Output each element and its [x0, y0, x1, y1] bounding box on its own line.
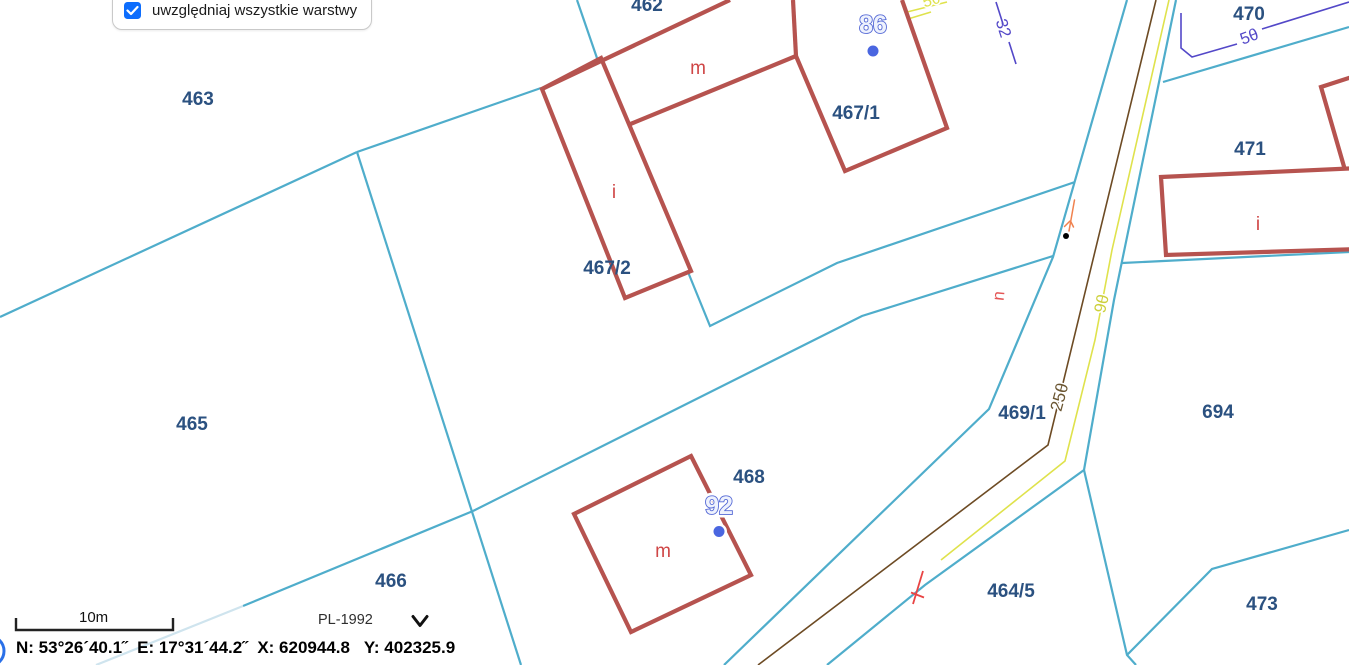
svg-text:n: n [989, 290, 1009, 301]
svg-text:462: 462 [631, 0, 663, 16]
svg-text:469/1: 469/1 [998, 403, 1046, 424]
svg-text:466: 466 [375, 571, 407, 592]
svg-text:9θ: 9θ [1091, 293, 1113, 315]
svg-text:5θ: 5θ [921, 0, 943, 11]
svg-text:463: 463 [182, 89, 214, 110]
svg-text:465: 465 [176, 414, 208, 435]
svg-text:467/1: 467/1 [832, 103, 880, 124]
svg-text:32: 32 [992, 17, 1015, 40]
svg-text:473: 473 [1246, 594, 1278, 615]
svg-text:470: 470 [1233, 4, 1265, 25]
svg-text:m: m [690, 58, 706, 79]
svg-text:464/5: 464/5 [987, 581, 1035, 602]
svg-text:467/2: 467/2 [583, 258, 631, 279]
svg-text:694: 694 [1202, 402, 1234, 423]
svg-text:468: 468 [733, 467, 765, 488]
svg-text:92: 92 [705, 492, 733, 520]
svg-text:471: 471 [1234, 139, 1266, 160]
svg-text:86: 86 [859, 11, 887, 39]
svg-text:5θ: 5θ [1238, 25, 1262, 48]
svg-text:25θ: 25θ [1047, 381, 1073, 413]
svg-text:i: i [1256, 214, 1260, 235]
svg-text:i: i [612, 182, 616, 203]
svg-text:m: m [655, 541, 671, 562]
